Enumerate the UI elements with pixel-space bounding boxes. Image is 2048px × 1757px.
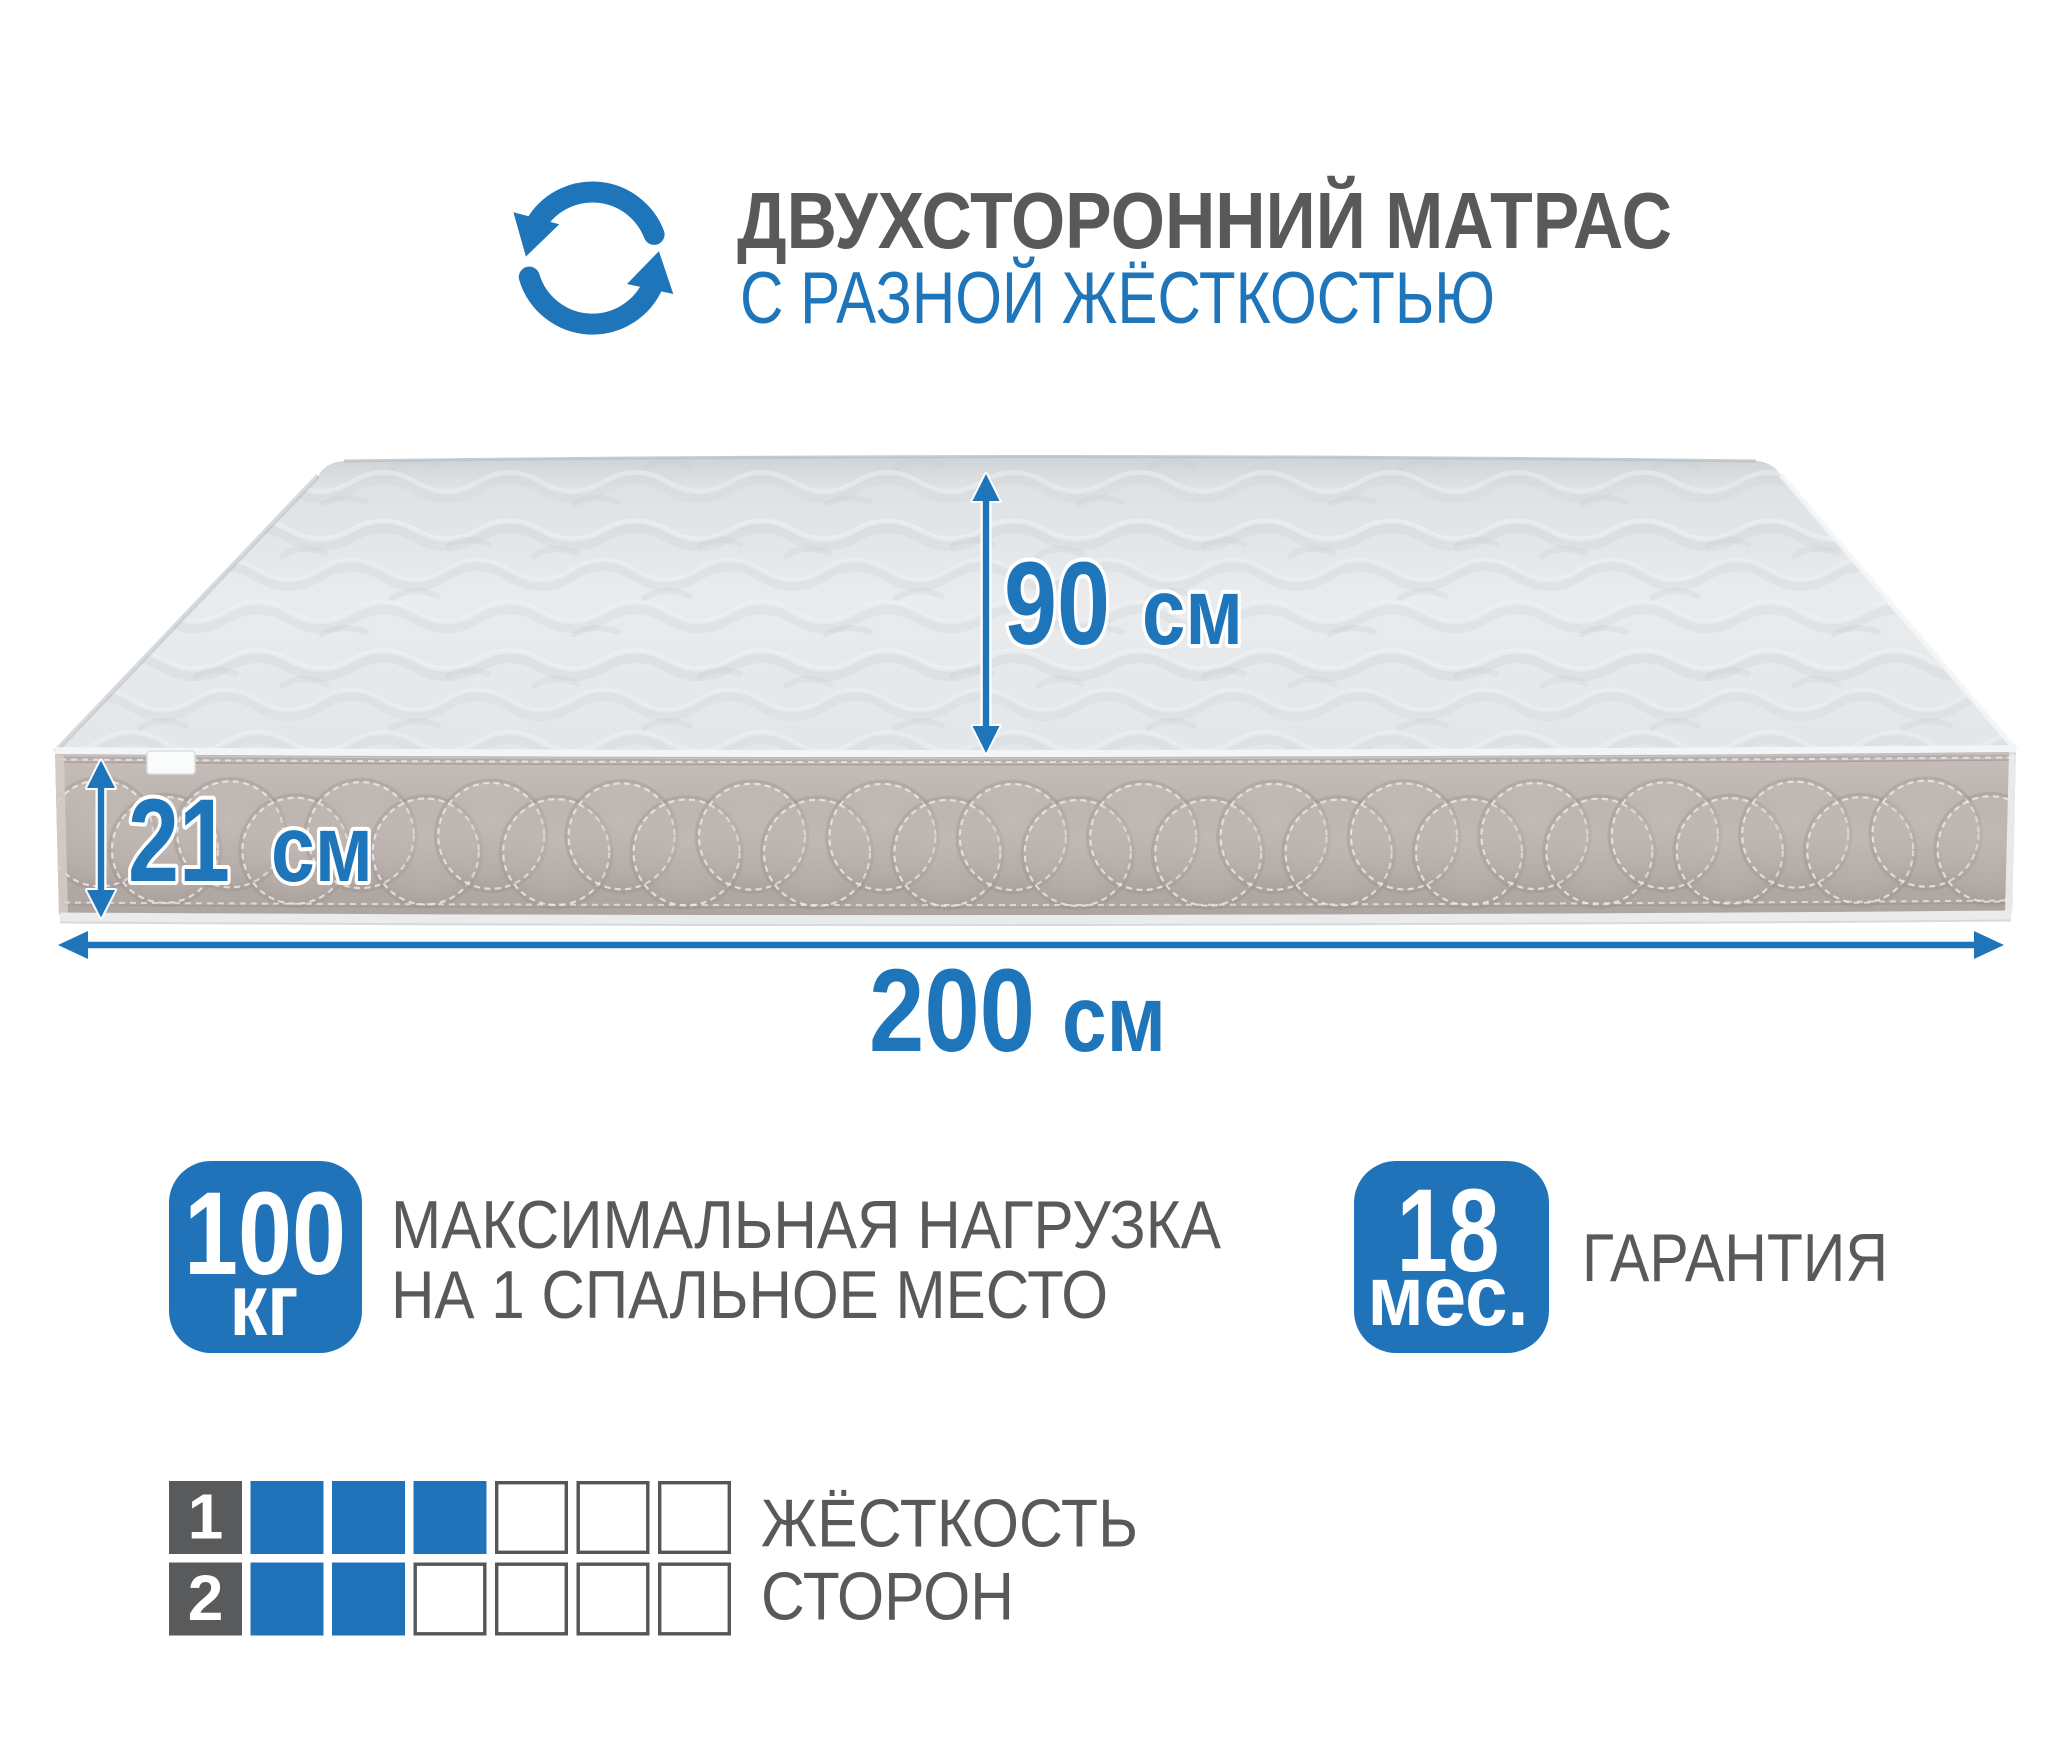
svg-text:см: см [271,796,373,902]
svg-text:ДВУХСТОРОННИЙ МАТРАС: ДВУХСТОРОННИЙ МАТРАС [737,175,1672,265]
svg-text:2: 2 [188,1562,224,1634]
svg-text:см: см [1142,559,1243,665]
svg-text:МАКСИМАЛЬНАЯ НАГРУЗКА: МАКСИМАЛЬНАЯ НАГРУЗКА [391,1188,1221,1263]
svg-text:90: 90 [1004,538,1110,670]
svg-text:кг: кг [230,1255,299,1354]
svg-text:200: 200 [869,945,1035,1077]
svg-text:СТОРОН: СТОРОН [761,1560,1014,1635]
svg-text:мес.: мес. [1368,1249,1529,1344]
svg-text:см: см [1062,966,1166,1072]
svg-text:С РАЗНОЙ ЖЁСТКОСТЬЮ: С РАЗНОЙ ЖЁСТКОСТЬЮ [740,257,1495,339]
svg-text:21: 21 [128,775,230,907]
svg-text:НА 1 СПАЛЬНОЕ МЕСТО: НА 1 СПАЛЬНОЕ МЕСТО [391,1258,1108,1333]
svg-text:1: 1 [188,1481,224,1553]
svg-text:ЖЁСТКОСТЬ: ЖЁСТКОСТЬ [761,1487,1138,1562]
svg-text:ГАРАНТИЯ: ГАРАНТИЯ [1582,1221,1888,1296]
